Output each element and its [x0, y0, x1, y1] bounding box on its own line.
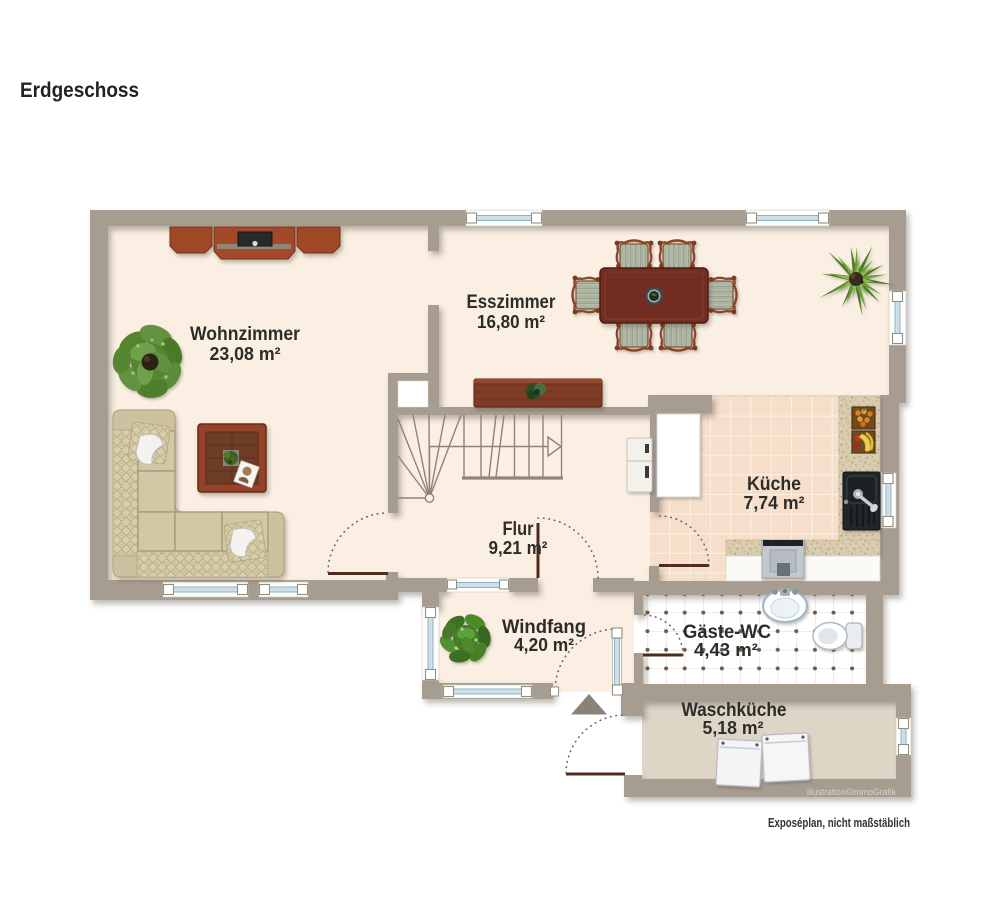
svg-text:9,21 m²: 9,21 m² — [489, 538, 548, 558]
svg-text:7,74 m²: 7,74 m² — [744, 493, 805, 513]
svg-text:16,80 m²: 16,80 m² — [477, 312, 545, 332]
svg-text:Wohnzimmer: Wohnzimmer — [190, 324, 301, 345]
svg-text:illustration©immoGrafik: illustration©immoGrafik — [807, 787, 896, 797]
svg-text:Esszimmer: Esszimmer — [467, 292, 557, 313]
svg-text:Erdgeschoss: Erdgeschoss — [20, 79, 139, 102]
svg-text:Exposéplan, nicht maßstäblich: Exposéplan, nicht maßstäblich — [768, 816, 910, 830]
svg-text:Flur: Flur — [503, 519, 535, 540]
svg-text:Küche: Küche — [747, 474, 801, 495]
svg-text:4,20 m²: 4,20 m² — [514, 635, 574, 655]
svg-text:23,08 m²: 23,08 m² — [210, 344, 281, 364]
svg-text:5,18 m²: 5,18 m² — [703, 718, 764, 738]
svg-text:4,43 m²: 4,43 m² — [694, 640, 758, 660]
